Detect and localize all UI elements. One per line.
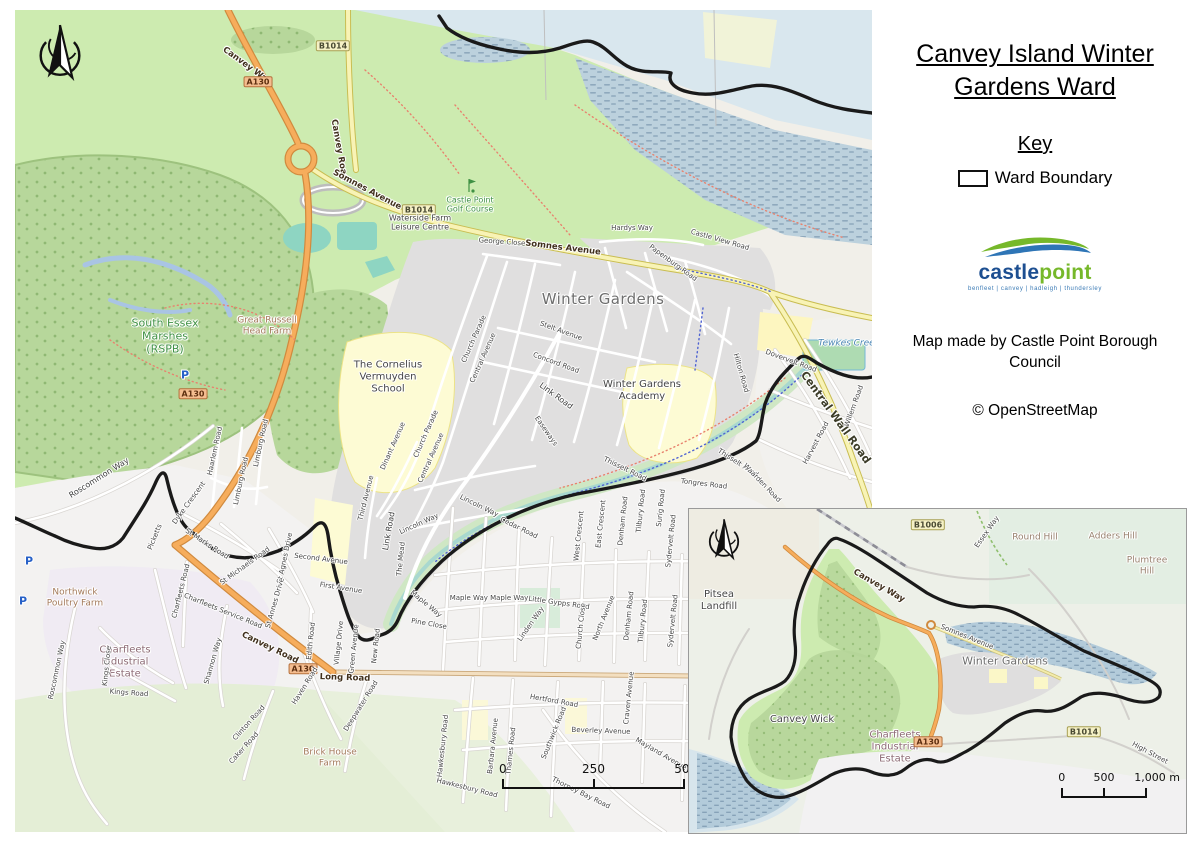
sidebar: Canvey Island Winter Gardens Ward Key Wa… (878, 38, 1192, 420)
key-item-label: Ward Boundary (995, 168, 1112, 188)
logo-text-castle: castle (978, 261, 1039, 284)
scale-bar-line (1061, 788, 1147, 798)
inset-scale-bar: 0 500 1,000 m (1061, 771, 1147, 798)
key-heading: Key (878, 133, 1192, 156)
logo-wordmark: castlepoint (878, 261, 1192, 285)
credit-text: Map made by Castle Point Borough Council (878, 332, 1192, 374)
key-item-ward-boundary: Ward Boundary (878, 168, 1192, 188)
main-scale-bar: 0 250 500 m (502, 762, 685, 789)
north-arrow-icon (701, 517, 747, 567)
page-title: Canvey Island Winter Gardens Ward (878, 38, 1192, 103)
north-arrow-icon (29, 22, 91, 90)
logo-text-point: point (1039, 261, 1091, 284)
logo-tagline: benfleet | canvey | hadleigh | thundersl… (878, 286, 1192, 292)
ward-boundary-swatch-icon (958, 170, 988, 187)
osm-attribution: © OpenStreetMap (878, 402, 1192, 420)
inset-overview-map: B1006Essex WayRound HillAdders HillPlumt… (688, 508, 1187, 834)
scale-mid: 500 (1094, 771, 1115, 784)
scale-start: 0 (1058, 771, 1065, 784)
logo-swoosh-icon (975, 234, 1095, 260)
scale-bar-line (502, 779, 685, 789)
castlepoint-logo: castlepoint benfleet | canvey | hadleigh… (878, 234, 1192, 292)
scale-start: 0 (499, 762, 507, 776)
scale-end: 1,000 m (1134, 771, 1180, 784)
scale-mid: 250 (582, 762, 605, 776)
golf-icon (464, 178, 478, 194)
